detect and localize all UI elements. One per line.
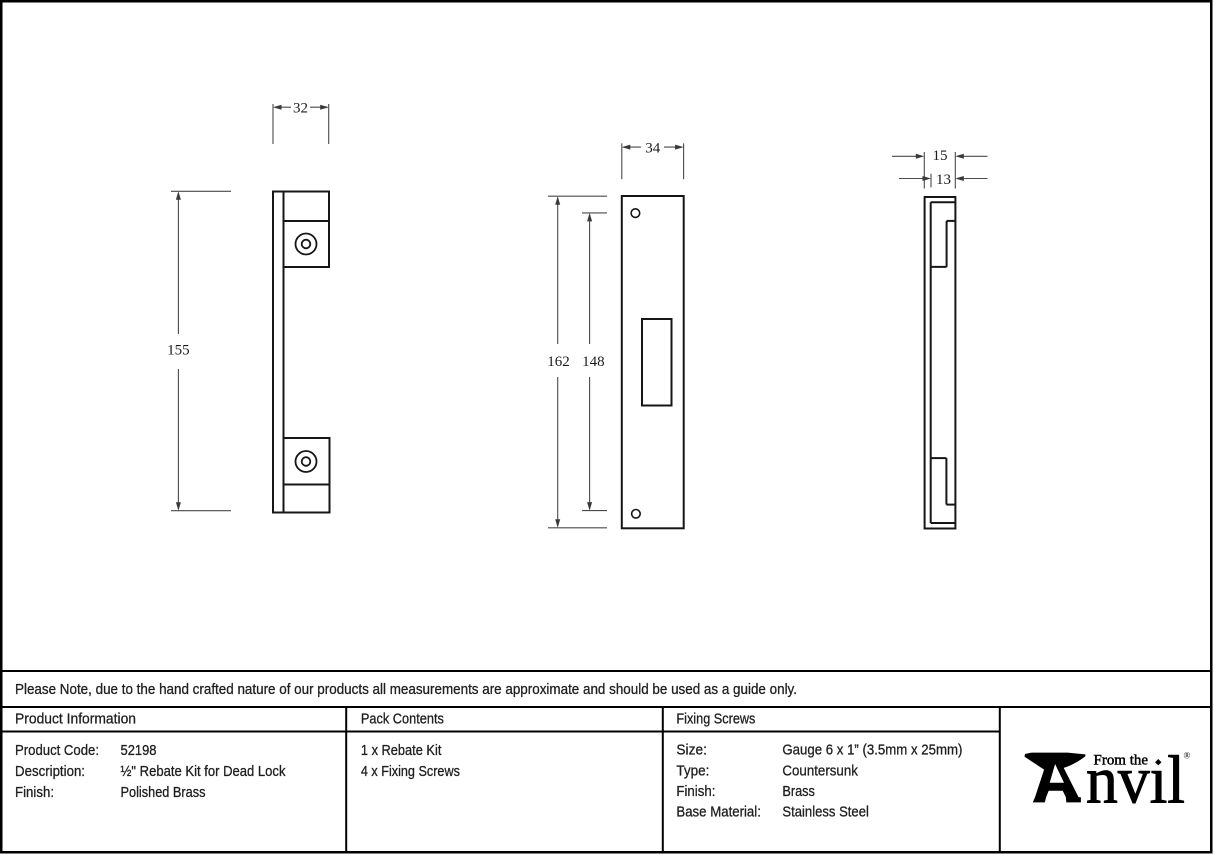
svg-text:Product Information: Product Information xyxy=(15,711,136,728)
svg-text:Countersunk: Countersunk xyxy=(782,763,858,780)
svg-text:Finish:: Finish: xyxy=(676,783,715,800)
svg-text:Product Code:: Product Code: xyxy=(15,742,99,759)
svg-text:Fixing Screws: Fixing Screws xyxy=(676,711,755,728)
svg-text:1 x Rebate Kit: 1 x Rebate Kit xyxy=(361,742,442,759)
svg-text:Size:: Size: xyxy=(676,742,707,759)
svg-text:nvıl: nvıl xyxy=(1086,741,1185,817)
svg-text:34: 34 xyxy=(645,140,661,156)
svg-text:Gauge 6 x 1” (3.5mm x 25mm): Gauge 6 x 1” (3.5mm x 25mm) xyxy=(782,742,962,759)
svg-text:148: 148 xyxy=(582,354,605,370)
svg-text:Pack Contents: Pack Contents xyxy=(361,711,444,728)
svg-text:Base Material:: Base Material: xyxy=(676,804,761,821)
svg-text:Description:: Description: xyxy=(15,763,85,780)
svg-text:Finish:: Finish: xyxy=(15,784,54,801)
svg-text:13: 13 xyxy=(936,172,951,188)
svg-text:162: 162 xyxy=(547,354,570,370)
svg-text:4 x Fixing Screws: 4 x Fixing Screws xyxy=(361,763,460,780)
svg-text:Polished Brass: Polished Brass xyxy=(121,784,206,801)
svg-text:Please Note, due to the hand c: Please Note, due to the hand crafted nat… xyxy=(15,681,797,698)
svg-text:½" Rebate Kit for Dead Lock: ½" Rebate Kit for Dead Lock xyxy=(121,763,286,780)
svg-text:32: 32 xyxy=(293,101,308,117)
svg-text:Stainless Steel: Stainless Steel xyxy=(782,804,869,821)
svg-text:Type:: Type: xyxy=(676,763,709,780)
svg-text:15: 15 xyxy=(933,148,948,164)
svg-text:155: 155 xyxy=(167,343,190,359)
svg-text:Brass: Brass xyxy=(782,783,815,800)
svg-text:52198: 52198 xyxy=(121,742,157,759)
